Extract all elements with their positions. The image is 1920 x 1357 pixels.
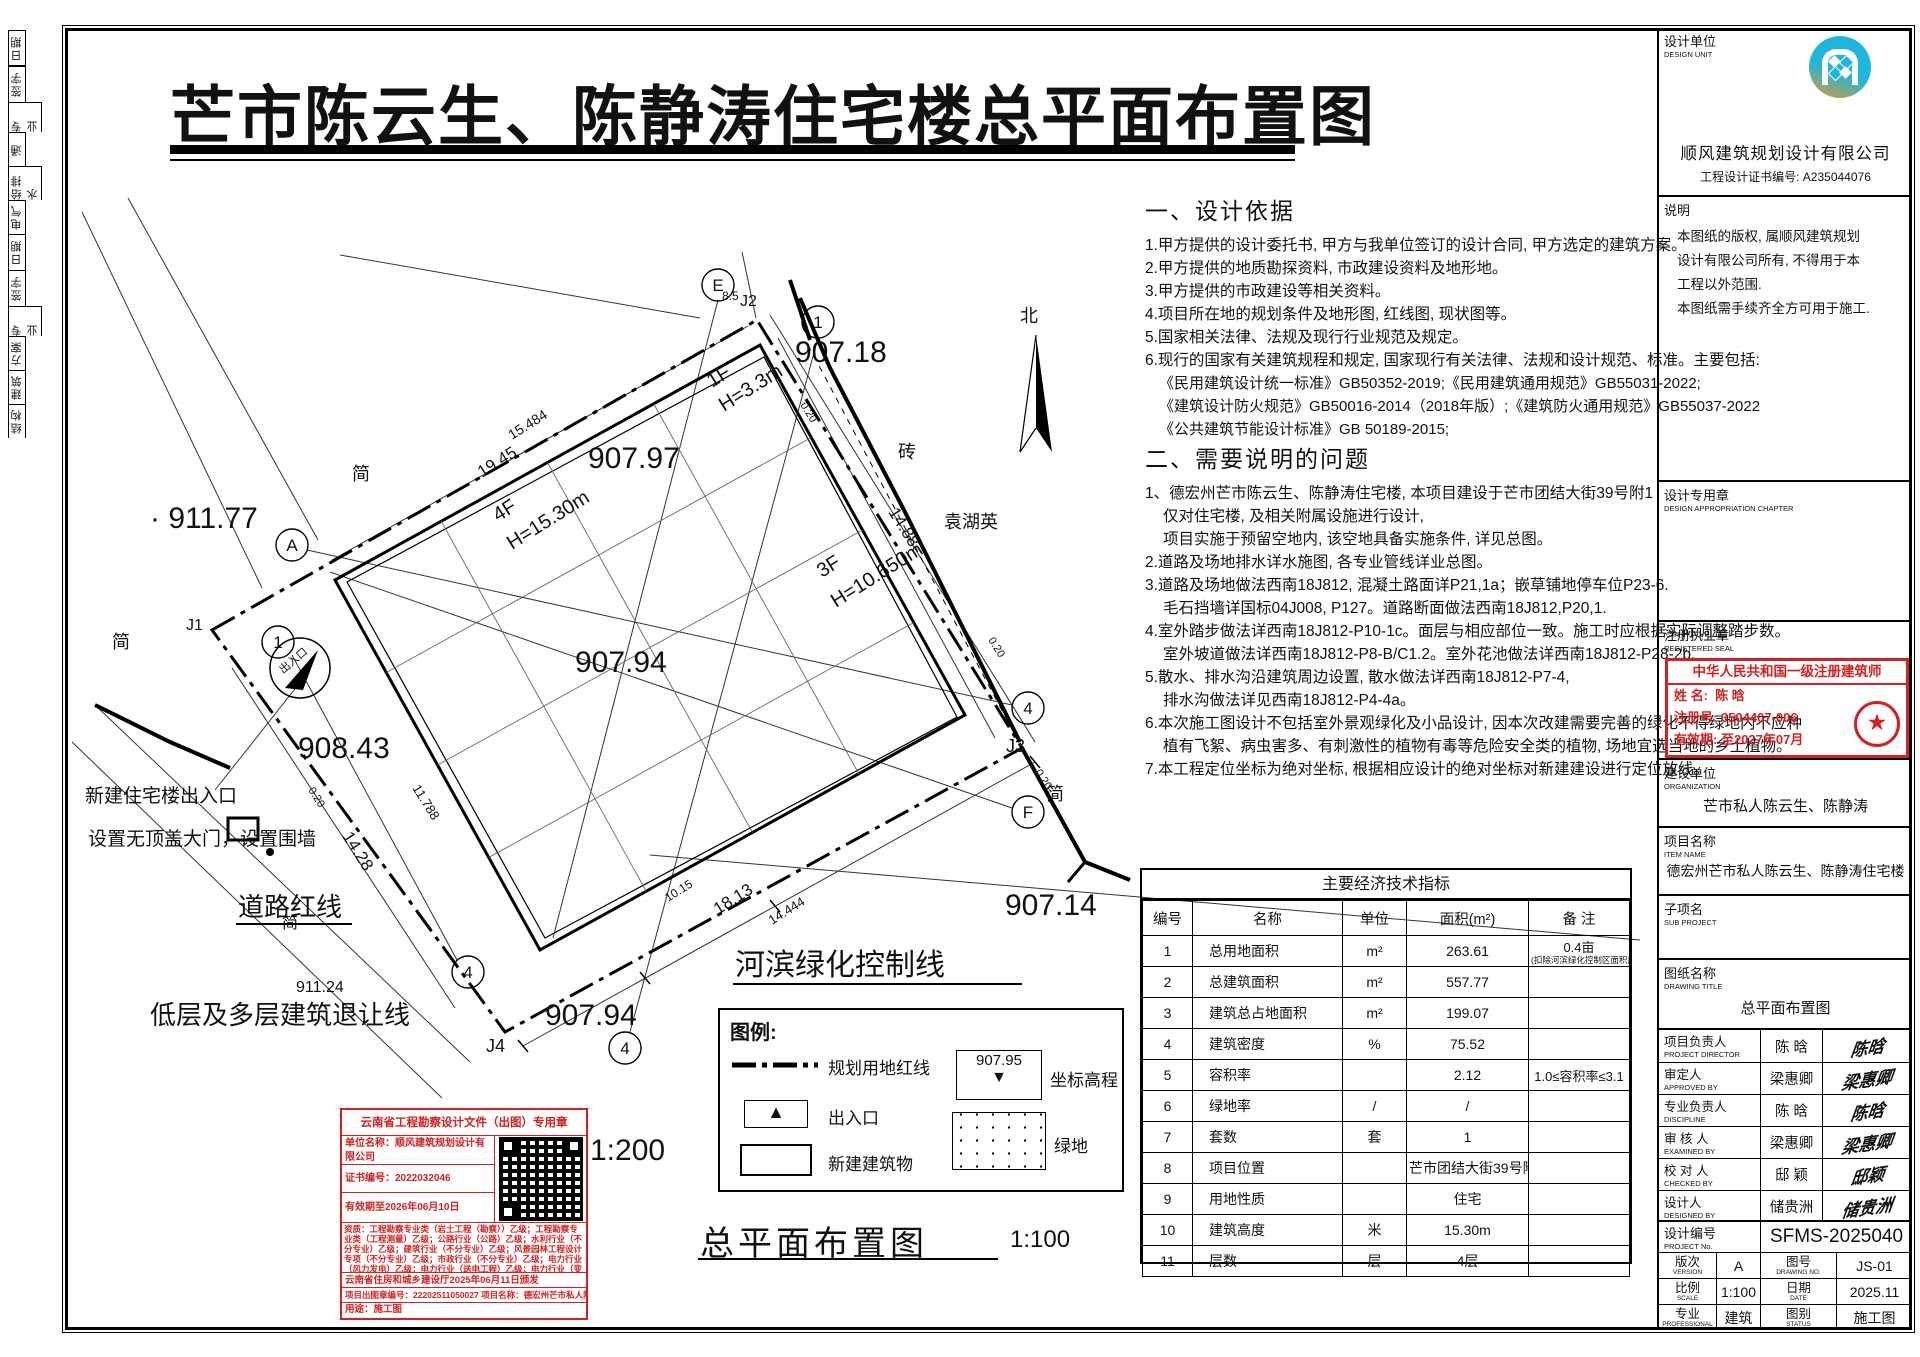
stamp-qualifications: 资质：工程勘察专业类（岩土工程（勘察））乙级；工程勘察专业类（工程测量）乙级；公… xyxy=(342,1223,586,1273)
table-cell: 层数 xyxy=(1193,1246,1343,1277)
indicators-grid: 编号名称单位面积(m²)备 注1总用地面积m²263.610.4亩(扣除河滨绿化… xyxy=(1142,900,1630,1277)
axis-circle: 1 xyxy=(262,626,294,658)
sub-project-label: 子项名 xyxy=(1659,896,1912,918)
table-cell: 建筑密度 xyxy=(1193,1029,1343,1060)
signature: 陈晗 xyxy=(1849,1031,1886,1061)
plan-label: 0.20 xyxy=(305,785,327,810)
svg-text:4: 4 xyxy=(1023,699,1032,718)
signature: 梁惠卿 xyxy=(1840,1127,1894,1158)
note-line: 5.国家相关法律、法规及现行行业规范及规定。 xyxy=(1145,326,1650,349)
plan-label: 新建住宅楼出入口 xyxy=(85,785,237,807)
table-row: 4建筑密度%75.52 xyxy=(1143,1029,1630,1060)
note-line: 《建筑设计防火规范》GB50016-2014（2018年版）;《建筑防火通用规范… xyxy=(1159,395,1650,418)
svg-text:1: 1 xyxy=(273,633,282,652)
plan-label: J1 xyxy=(186,617,203,634)
item-name-section: 项目名称 ITEM NAME 德宏州芒市私人陈云生、陈静涛住宅楼 xyxy=(1659,826,1912,894)
legend-title: 图例: xyxy=(730,1016,777,1045)
table-row: 6绿地率// xyxy=(1143,1091,1630,1122)
table-cell: 2.12 xyxy=(1407,1060,1529,1091)
design-chapter-label: 设计专用章 xyxy=(1659,482,1912,504)
table-note-cell xyxy=(1529,1091,1630,1122)
table-cell: 套 xyxy=(1343,1122,1407,1153)
personnel-name: 陈 晗 xyxy=(1761,1095,1823,1126)
drawing-title-label-en: DRAWING TITLE xyxy=(1659,982,1912,991)
table-cell: 8 xyxy=(1143,1153,1193,1184)
svg-text:4: 4 xyxy=(463,963,472,982)
table-cell: 3 xyxy=(1143,998,1193,1029)
table-cell: 7 xyxy=(1143,1122,1193,1153)
table-cell: 绿地率 xyxy=(1193,1091,1343,1122)
plan-label: 11.788 xyxy=(409,782,442,823)
signature: 邸颖 xyxy=(1849,1159,1886,1189)
company-cert-no: 工程设计证书编号: A235044076 xyxy=(1659,168,1912,185)
drawing-title-section: 图纸名称 DRAWING TITLE 总平面布置图 xyxy=(1659,958,1912,1028)
table-cell: m² xyxy=(1343,998,1407,1029)
plan-label: 907.94 xyxy=(545,999,637,1032)
plan-label: 袁湖英 xyxy=(944,512,998,532)
table-row: 1总用地面积m²263.610.4亩(扣除河滨绿化控制区面积后) xyxy=(1143,936,1630,967)
plan-label: 河滨绿化控制线 xyxy=(735,949,945,982)
table-cell: 4层 xyxy=(1407,1246,1529,1277)
table-cell: 2 xyxy=(1143,967,1193,998)
plan-label: 14.88 xyxy=(885,504,924,550)
plan-label: 设置无顶盖大门，设置围墙 xyxy=(88,828,316,850)
svg-text:A: A xyxy=(286,536,298,555)
notice-lines: 本图纸的版权, 属顺风建筑规划设计有限公司所有, 不得用于本工程以外范围.本图纸… xyxy=(1659,219,1912,321)
note-line: 4.室外踏步做法详西南18J812-P10-1c。面层与相应部位一致。施工时应根… xyxy=(1145,620,1650,643)
item-name-label-en: ITEM NAME xyxy=(1659,850,1912,859)
registered-seal-label-en: REGISTERED SEAL xyxy=(1659,644,1912,653)
stamp-validity-row: 有效期至2026年06月10日 xyxy=(342,1193,494,1222)
organization-value: 芒市私人陈云生、陈静涛 xyxy=(1659,795,1912,816)
plan-label: 3F xyxy=(813,551,844,582)
registered-seal-section: 注册执业章 REGISTERED SEAL 中华人民共和国一级注册建筑师 姓 名… xyxy=(1659,620,1912,758)
remarks-items: 1、德宏州芒市陈云生、陈静涛住宅楼, 本项目建设于芒市团结大街39号附1仅对住宅… xyxy=(1145,482,1650,781)
table-cell: / xyxy=(1407,1091,1529,1122)
entrance-symbol-icon: ▲ xyxy=(744,1100,808,1128)
table-note-cell xyxy=(1529,998,1630,1029)
legend-elevation-label: 坐标高程 xyxy=(1050,1066,1118,1091)
axis-circle: 4 xyxy=(1012,692,1044,724)
indicators-header-cell: 备 注 xyxy=(1529,901,1630,936)
table-cell: 1 xyxy=(1143,936,1193,967)
table-note-cell xyxy=(1529,1215,1630,1246)
table-note-cell xyxy=(1529,1122,1630,1153)
table-cell: 263.61 xyxy=(1407,936,1529,967)
title-block-panel: 设计单位 DESIGN UNIT 顺风建筑规划设计有限公司 工程设计证书编号: … xyxy=(1657,28,1912,1330)
svg-text:F: F xyxy=(1023,803,1033,822)
personnel-row: 校 对 人CHECKED BY邸 颖邸颖 xyxy=(1659,1158,1912,1190)
project-no-value: SFMS-2025040 xyxy=(1761,1222,1912,1252)
plan-label: 907.97 xyxy=(588,442,680,475)
design-unit-section: 设计单位 DESIGN UNIT 顺风建筑规划设计有限公司 工程设计证书编号: … xyxy=(1659,28,1912,195)
elevation-sample-value: 907.95 xyxy=(957,1051,1041,1071)
note-line: 排水沟做法详见西南18J812-P4-4a。 xyxy=(1163,689,1650,712)
drawing-sheet: 日期签字专 业通给排水电气日期签字专 业方案建筑结构 芒市陈云生、陈静涛住宅楼总… xyxy=(0,0,1920,1357)
table-row: 3建筑总占地面积m²199.07 xyxy=(1143,998,1630,1029)
note-line: 6.现行的国家有关建筑规程和规定, 国家现行有关法律、法规和设计规范、标准。主要… xyxy=(1145,349,1650,372)
table-cell xyxy=(1343,1060,1407,1091)
table-cell: 5 xyxy=(1143,1060,1193,1091)
table-cell: 10 xyxy=(1143,1215,1193,1246)
signature: 储贵洲 xyxy=(1840,1191,1894,1222)
note-line: 项目实施于预留空地内, 该空地具备实施条件, 详见总图。 xyxy=(1163,528,1650,551)
plan-label: 4F xyxy=(489,495,520,526)
indicators-header-cell: 名称 xyxy=(1193,901,1343,936)
legend-box: 图例: 规划用地红线 ▲ 出入口 新建建筑物 907.95 ▼ 坐标高程 绿地 xyxy=(718,1008,1124,1192)
item-name-label: 项目名称 xyxy=(1659,828,1912,850)
plan-label: 907.94 xyxy=(575,646,667,679)
table-row: 8项目位置芒市团结大街39号附1 xyxy=(1143,1153,1630,1184)
table-cell: 9 xyxy=(1143,1184,1193,1215)
stamp-project-line: 项目出图章编号：22202511050027 项目名称：德宏州芒市私人陈云生、陈… xyxy=(342,1288,586,1303)
table-row: 5容积率2.121.0≤容积率≤3.1 xyxy=(1143,1060,1630,1091)
plan-label: 907.14 xyxy=(1005,889,1097,922)
notice-label: 说明 xyxy=(1659,197,1912,219)
table-row: 2总建筑面积m²557.77 xyxy=(1143,967,1630,998)
copyright-notice-section: 说明 本图纸的版权, 属顺风建筑规划设计有限公司所有, 不得用于本工程以外范围.… xyxy=(1659,195,1912,480)
plan-label: 8.5 xyxy=(722,289,739,303)
architect-stamp: 中华人民共和国一级注册建筑师 姓 名: 陈 晗 注册号: 3504407-006… xyxy=(1665,658,1909,758)
personnel-name: 梁惠卿 xyxy=(1761,1063,1823,1094)
notice-line: 工程以外范围. xyxy=(1677,273,1912,297)
note-line: 《民用建筑设计统一标准》GB50352-2019;《民用建筑通用规范》GB550… xyxy=(1159,372,1650,395)
redline-symbol-icon xyxy=(732,1058,818,1072)
plan-label: 砖 xyxy=(898,442,916,462)
notice-line: 设计有限公司所有, 不得用于本 xyxy=(1677,249,1912,273)
signature: 梁惠卿 xyxy=(1840,1063,1894,1094)
legend-entrance-label: 出入口 xyxy=(828,1104,879,1129)
note-line: 3.甲方提供的市政建设等相关资料。 xyxy=(1145,280,1650,303)
table-cell: 总建筑面积 xyxy=(1193,967,1343,998)
design-unit-label: 设计单位 xyxy=(1659,28,1912,50)
table-note-cell xyxy=(1529,1246,1630,1277)
plan-bottom-underline xyxy=(698,1258,998,1260)
plan-label: 19.45 xyxy=(474,443,520,482)
indicators-header-cell: 面积(m²) xyxy=(1407,901,1529,936)
table-row: 9用地性质住宅 xyxy=(1143,1184,1630,1215)
note-line: 3.道路及场地做法西南18J812, 混凝土路面详P21,1a；嵌草铺地停车位P… xyxy=(1145,574,1650,597)
svg-text:4: 4 xyxy=(620,1039,629,1058)
svg-text:1: 1 xyxy=(813,313,822,332)
north-arrow-icon xyxy=(1020,335,1052,452)
personnel-name: 邸 颖 xyxy=(1761,1159,1823,1190)
table-cell: m² xyxy=(1343,967,1407,998)
design-basis-title: 一、设计依据 xyxy=(1145,192,1650,226)
note-line: 毛石挡墙详国标04J008, P127。道路断面做法西南18J812,P20,1… xyxy=(1163,597,1650,620)
indicators-header-cell: 单位 xyxy=(1343,901,1407,936)
table-cell: 套数 xyxy=(1193,1122,1343,1153)
note-line: 7.本工程定位坐标为绝对坐标, 根据相应设计的绝对坐标对新建建设进行定位放线。 xyxy=(1145,758,1650,781)
table-note-cell xyxy=(1529,1184,1630,1215)
legend-redline-label: 规划用地红线 xyxy=(828,1054,930,1079)
plan-label: J3 xyxy=(1006,736,1025,756)
notice-line: 本图纸的版权, 属顺风建筑规划 xyxy=(1677,225,1912,249)
company-name: 顺风建筑规划设计有限公司 xyxy=(1659,140,1912,164)
note-line: 仅对住宅楼, 及相关附属设施进行设计, xyxy=(1163,505,1650,528)
table-cell: 75.52 xyxy=(1407,1029,1529,1060)
table-cell: 项目位置 xyxy=(1193,1153,1343,1184)
note-line: 《公共建筑节能设计标准》GB 50189-2015; xyxy=(1159,418,1650,441)
seal-icon: ★ xyxy=(1854,701,1900,747)
table-note-cell xyxy=(1529,967,1630,998)
design-unit-label-en: DESIGN UNIT xyxy=(1659,50,1912,59)
stamp-heading: 中华人民共和国一级注册建筑师 xyxy=(1668,661,1906,685)
meta-row: 比例SCALE1:100日期DATE2025.11 xyxy=(1659,1278,1912,1304)
green-symbol-icon xyxy=(952,1112,1046,1170)
plan-label: 14.444 xyxy=(766,894,808,928)
organization-section: 建设单位 ORGANIZATION 芒市私人陈云生、陈静涛 xyxy=(1659,758,1912,826)
project-no-section: 设计编号 PROJECT No. SFMS-2025040 xyxy=(1659,1220,1912,1252)
table-cell: m² xyxy=(1343,936,1407,967)
design-chapter-section: 设计专用章 DESIGN APPROPRIATION CHAPTER xyxy=(1659,480,1912,620)
note-line: 1.甲方提供的设计委托书, 甲方与我单位签订的设计合同, 甲方选定的建筑方案。 xyxy=(1145,234,1650,257)
table-cell: 199.07 xyxy=(1407,998,1529,1029)
company-logo xyxy=(1809,36,1871,98)
plan-label: J4 xyxy=(486,1036,505,1056)
notice-line: 本图纸需手续齐全方可用于施工. xyxy=(1677,297,1912,321)
stamp-title: 云南省工程勘察设计文件（出图）专用章 xyxy=(342,1110,586,1136)
note-line: 2.甲方提供的地质勘探资料, 市政建设资料及地形地。 xyxy=(1145,257,1650,280)
indicators-header-cell: 编号 xyxy=(1143,901,1193,936)
plan-label: 18.13 xyxy=(710,880,756,919)
personnel-name: 陈 晗 xyxy=(1761,1030,1823,1062)
legend-building-label: 新建建筑物 xyxy=(828,1150,913,1175)
wall-road-lines xyxy=(95,280,1130,882)
registered-seal-label: 注册执业章 xyxy=(1659,622,1912,644)
table-row: 10建筑高度米15.30m xyxy=(1143,1215,1630,1246)
meta-row: 版次VERSIONA图号DRAWING NO.JS-01 xyxy=(1659,1252,1912,1278)
economic-indicators-table: 主要经济技术指标 编号名称单位面积(m²)备 注1总用地面积m²263.610.… xyxy=(1140,868,1632,1264)
axis-circle: F xyxy=(1012,796,1044,828)
table-cell: 芒市团结大街39号附1 xyxy=(1407,1153,1529,1184)
qr-code xyxy=(499,1137,583,1221)
design-basis-section: 一、设计依据 1.甲方提供的设计委托书, 甲方与我单位签订的设计合同, 甲方选定… xyxy=(1145,192,1650,441)
note-line: 4.项目所在地的规划条件及地形图, 红线图, 现状图等。 xyxy=(1145,303,1650,326)
note-line: 5.散水、排水沟沿建筑周边设置, 散水做法详西南18J812-P7-4, xyxy=(1145,666,1650,689)
table-cell: 建筑高度 xyxy=(1193,1215,1343,1246)
axis-circle: 4 xyxy=(609,1032,641,1064)
organization-label-en: ORGANIZATION xyxy=(1659,782,1912,791)
table-cell: 总用地面积 xyxy=(1193,936,1343,967)
table-cell: 1 xyxy=(1407,1122,1529,1153)
table-note-cell xyxy=(1529,1153,1630,1184)
sub-project-label-en: SUB PROJECT xyxy=(1659,918,1912,927)
personnel-row: 设计人DESIGNED BY储贵洲储贵洲 xyxy=(1659,1190,1912,1222)
stamp-unit-row: 单位名称：顺风建筑规划设计有限公司 xyxy=(342,1136,494,1165)
project-no-label: 设计编号 xyxy=(1659,1222,1760,1242)
plan-label: 北 xyxy=(1020,306,1038,326)
province-stamp-box: 云南省工程勘察设计文件（出图）专用章 单位名称：顺风建筑规划设计有限公司 证书编… xyxy=(340,1108,588,1320)
table-row: 7套数套1 xyxy=(1143,1122,1630,1153)
table-cell: 住宅 xyxy=(1407,1184,1529,1215)
plan-label: 低层及多层建筑退让线 xyxy=(150,1000,410,1030)
note-line: 室外坡道做法详西南18J812-P8-B/C1.2。室外花池做法详西南18J81… xyxy=(1163,643,1650,666)
stamp-issuer: 云南省住房和城乡建设厅2025年06月11日颁发 xyxy=(342,1273,586,1288)
axis-circle: A xyxy=(276,529,308,561)
table-cell: 15.30m xyxy=(1407,1215,1529,1246)
table-cell xyxy=(1343,1184,1407,1215)
plan-label: 简 xyxy=(352,464,370,484)
signature: 陈晗 xyxy=(1849,1095,1886,1125)
note-line: 植有飞絮、病虫害多、有刺激性的植物有毒等危险安全类的植物, 场地宜选当地的乡土植… xyxy=(1163,735,1650,758)
table-note-cell: 1.0≤容积率≤3.1 xyxy=(1529,1060,1630,1091)
axis-circle: 4 xyxy=(452,956,484,988)
table-cell: / xyxy=(1343,1091,1407,1122)
table-cell xyxy=(1343,1153,1407,1184)
table-row: 11层数层4层 xyxy=(1143,1246,1630,1277)
drawing-title-value: 总平面布置图 xyxy=(1659,997,1912,1018)
plan-label: 907.18 xyxy=(795,336,887,369)
stamp-usage: 用途：施工图 xyxy=(342,1303,586,1317)
organization-label: 建设单位 xyxy=(1659,760,1912,782)
design-chapter-label-en: DESIGN APPROPRIATION CHAPTER xyxy=(1659,504,1912,513)
axis-circle: 1 xyxy=(802,306,834,338)
table-note-cell xyxy=(1529,1029,1630,1060)
legend-green-label: 绿地 xyxy=(1054,1132,1088,1157)
design-basis-items: 1.甲方提供的设计委托书, 甲方与我单位签订的设计合同, 甲方选定的建筑方案。2… xyxy=(1145,234,1650,441)
table-cell: 6 xyxy=(1143,1091,1193,1122)
sub-project-section: 子项名 SUB PROJECT xyxy=(1659,894,1912,958)
table-cell: 用地性质 xyxy=(1193,1184,1343,1215)
plan-label: 道路红线 xyxy=(238,892,342,922)
personnel-row: 项目负责人PROJECT DIRECTOR陈 晗陈晗 xyxy=(1659,1030,1912,1062)
drawing-title-label: 图纸名称 xyxy=(1659,960,1912,982)
plan-label: 简 xyxy=(112,632,130,652)
personnel-name: 梁惠卿 xyxy=(1761,1127,1823,1158)
plan-label: J2 xyxy=(740,293,757,310)
plan-label: 简 xyxy=(1046,784,1064,804)
table-cell: 557.77 xyxy=(1407,967,1529,998)
plan-label: 908.43 xyxy=(298,732,390,765)
stamp-cert-row: 证书编号：2022032046 xyxy=(342,1165,494,1193)
item-name-value: 德宏州芒市私人陈云生、陈静涛住宅楼 xyxy=(1659,861,1912,881)
plan-label: · 911.77 xyxy=(150,502,258,535)
elevation-symbol-icon: 907.95 ▼ xyxy=(956,1050,1042,1100)
plan-label: 0.20 xyxy=(985,635,1007,660)
note-line: 2.道路及场地排水详水施图, 各专业管线详业总图。 xyxy=(1145,551,1650,574)
plan-label: 911.24 xyxy=(296,979,344,996)
plan-label: H=10.650m xyxy=(827,538,927,612)
table-cell: 11 xyxy=(1143,1246,1193,1277)
table-cell: 米 xyxy=(1343,1215,1407,1246)
table-cell: 层 xyxy=(1343,1246,1407,1277)
personnel-row: 专业负责人DISCIPLINE RESPONSIBLE BY陈 晗陈晗 xyxy=(1659,1094,1912,1126)
table-note-cell: 0.4亩(扣除河滨绿化控制区面积后) xyxy=(1529,936,1630,967)
personnel-name: 储贵洲 xyxy=(1761,1191,1823,1222)
personnel-row: 审定人APPROVED BY梁惠卿梁惠卿 xyxy=(1659,1062,1912,1094)
personnel-section: 项目负责人PROJECT DIRECTOR陈 晗陈晗审定人APPROVED BY… xyxy=(1659,1028,1912,1220)
plan-bottom-scale: 1:100 xyxy=(1010,1226,1070,1254)
meta-row: 专业PROFESSIONAL建筑图别STATUS施工图 xyxy=(1659,1304,1912,1330)
personnel-row: 审 核 人EXAMINED BY梁惠卿梁惠卿 xyxy=(1659,1126,1912,1158)
project-no-label-en: PROJECT No. xyxy=(1659,1242,1760,1251)
table-cell: 建筑总占地面积 xyxy=(1193,998,1343,1029)
remarks-section: 二、需要说明的问题 1、德宏州芒市陈云生、陈静涛住宅楼, 本项目建设于芒市团结大… xyxy=(1145,440,1650,781)
stamp-id-rows: 单位名称：顺风建筑规划设计有限公司 证书编号：2022032046 有效期至20… xyxy=(342,1136,494,1222)
note-line: 1、德宏州芒市陈云生、陈静涛住宅楼, 本项目建设于芒市团结大街39号附1 xyxy=(1145,482,1650,505)
remarks-title: 二、需要说明的问题 xyxy=(1145,440,1650,474)
plan-label: 15.484 xyxy=(505,406,550,442)
building-symbol-icon xyxy=(740,1144,812,1176)
indicators-title: 主要经济技术指标 xyxy=(1142,870,1630,900)
table-cell: 容积率 xyxy=(1193,1060,1343,1091)
plan-label: 1:200 xyxy=(590,1134,665,1167)
table-cell: % xyxy=(1343,1029,1407,1060)
note-line: 6.本次施工图设计不包括室外景观绿化及小品设计, 因本次改建需要完善的绿化不得绿… xyxy=(1145,712,1650,735)
table-cell: 4 xyxy=(1143,1029,1193,1060)
